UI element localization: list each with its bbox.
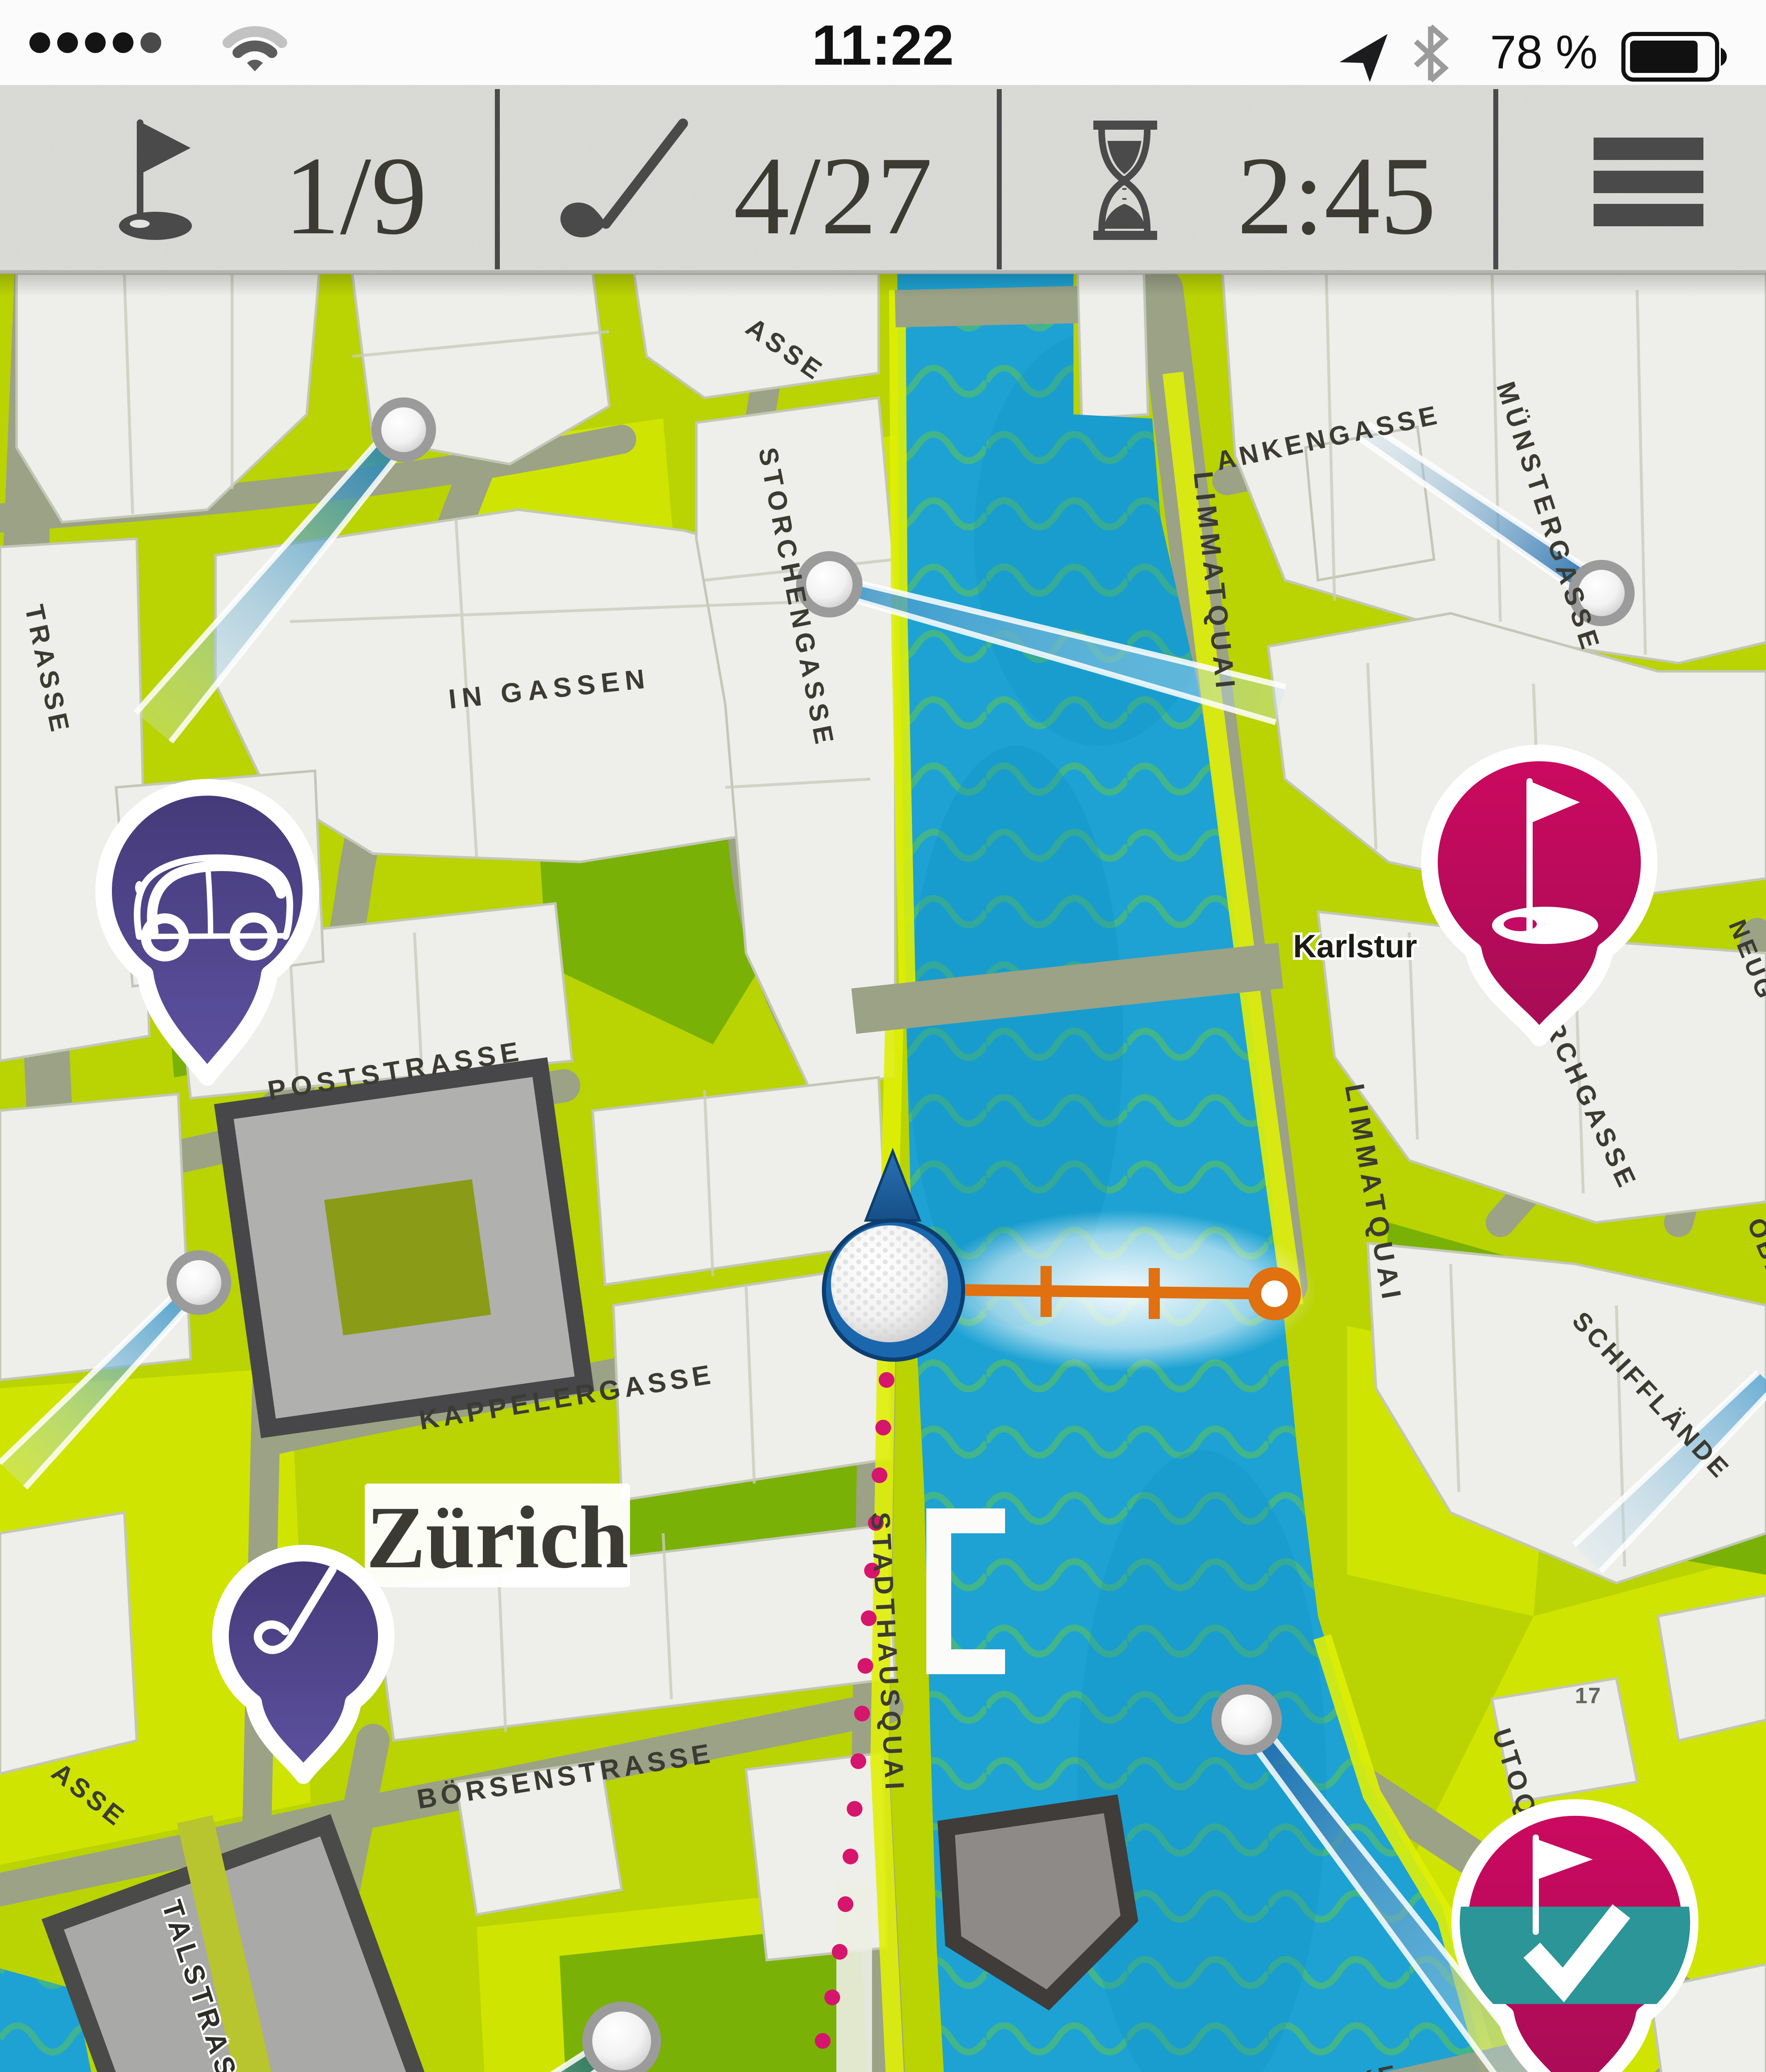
svg-text:Zürich: Zürich bbox=[366, 1488, 628, 1587]
svg-text:4/27: 4/27 bbox=[734, 134, 933, 258]
svg-text:2:45: 2:45 bbox=[1237, 134, 1436, 258]
svg-text:78 %: 78 % bbox=[1490, 26, 1598, 79]
svg-text:Karlstur: Karlstur bbox=[1293, 928, 1417, 964]
svg-text:11:22: 11:22 bbox=[812, 14, 954, 77]
svg-text:1/9: 1/9 bbox=[284, 134, 427, 258]
svg-text:17: 17 bbox=[1575, 1683, 1601, 1708]
